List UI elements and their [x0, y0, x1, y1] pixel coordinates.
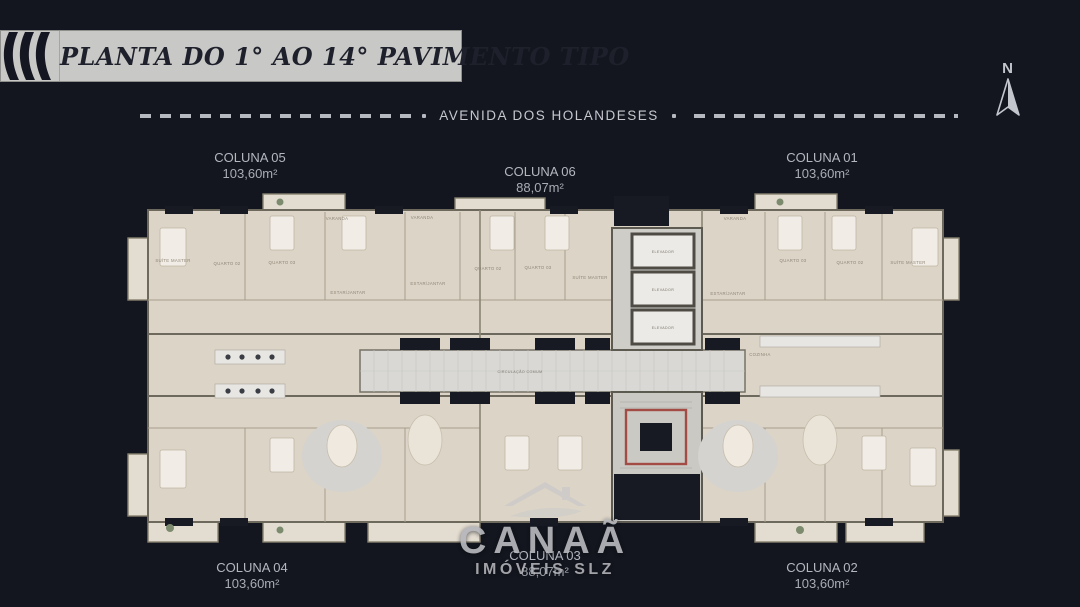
room-label: COZINHA — [749, 352, 770, 357]
unit-label-coluna-01: COLUNA 01 103,60m² — [732, 150, 912, 181]
street-row: AVENIDA DOS HOLANDESES — [140, 108, 958, 123]
room-label: SUÍTE MASTER — [890, 260, 925, 265]
brand-stripes-icon — [1, 31, 60, 81]
unit-area: 103,60m² — [732, 166, 912, 182]
elevator-label: ELEVADOR — [652, 250, 675, 254]
elevator-label: ELEVADOR — [652, 326, 675, 330]
room-label: VARANDA — [326, 216, 349, 221]
north-arrow-icon — [995, 77, 1021, 117]
elevator-label: ELEVADOR — [652, 288, 675, 292]
room-label: SUÍTE MASTER — [155, 258, 190, 263]
unit-name: COLUNA 02 — [732, 560, 912, 576]
unit-label-coluna-04: COLUNA 04 103,60m² — [162, 560, 342, 591]
room-label: ESTAR/JANTAR — [710, 291, 745, 296]
street-dash-left — [140, 114, 413, 118]
room-label: VARANDA — [411, 215, 434, 220]
room-label: SUÍTE MASTER — [572, 275, 607, 280]
unit-area: 88,07m² — [455, 564, 635, 580]
street-dot — [672, 114, 676, 118]
room-label: QUARTO 02 — [837, 260, 864, 265]
unit-area: 103,60m² — [732, 576, 912, 592]
floor-plan: CIRCULAÇÃO COMUM ELEVADOR ELEVADOR ELEVA… — [120, 188, 965, 560]
room-label: QUARTO 03 — [780, 258, 807, 263]
unit-name: COLUNA 06 — [450, 164, 630, 180]
street-dash-right — [685, 114, 958, 118]
common-corridor: CIRCULAÇÃO COMUM — [360, 350, 745, 392]
unit-area: 103,60m² — [160, 166, 340, 182]
room-label: VARANDA — [724, 216, 747, 221]
room-label: ESTAR/JANTAR — [410, 281, 445, 286]
street-name: AVENIDA DOS HOLANDESES — [435, 108, 663, 123]
unit-name: COLUNA 03 — [455, 548, 635, 564]
unit-name: COLUNA 01 — [732, 150, 912, 166]
floorplan-page: PLANTA DO 1° AO 14° PAVIMENTO TIPO AVENI… — [0, 0, 1080, 607]
room-label: QUARTO 02 — [214, 261, 241, 266]
room-label: QUARTO 02 — [475, 266, 502, 271]
corridor-label: CIRCULAÇÃO COMUM — [498, 369, 543, 374]
room-label: QUARTO 03 — [525, 265, 552, 270]
unit-label-coluna-05: COLUNA 05 103,60m² — [160, 150, 340, 181]
unit-name: COLUNA 05 — [160, 150, 340, 166]
page-title: PLANTA DO 1° AO 14° PAVIMENTO TIPO — [60, 42, 638, 71]
compass-n-label: N — [992, 60, 1024, 77]
room-label: QUARTO 03 — [269, 260, 296, 265]
unit-name: COLUNA 04 — [162, 560, 342, 576]
street-dot — [422, 114, 426, 118]
room-label: ESTAR/JANTAR — [330, 290, 365, 295]
title-banner: PLANTA DO 1° AO 14° PAVIMENTO TIPO — [0, 30, 462, 82]
unit-label-coluna-02: COLUNA 02 103,60m² — [732, 560, 912, 591]
unit-label-coluna-03: COLUNA 03 88,07m² — [455, 548, 635, 579]
north-compass: N — [992, 60, 1024, 122]
unit-area: 103,60m² — [162, 576, 342, 592]
stair-core — [612, 392, 702, 522]
